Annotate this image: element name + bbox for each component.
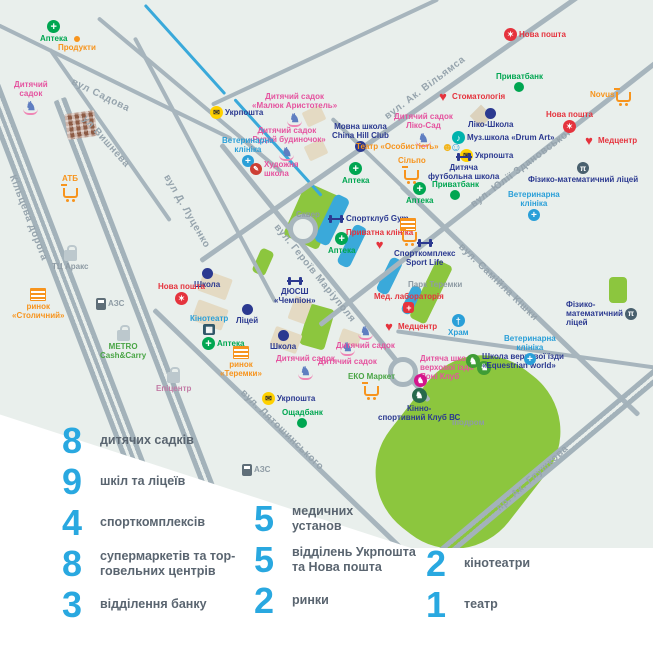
legend-count: 4 [56,505,88,541]
legend-item: 5відділень Укрпошта та Нова пошта [248,539,416,580]
legend-label: кінотеатри [464,556,530,571]
legend-count: 3 [56,587,88,623]
legend-item: 8дитячих садків [56,420,235,461]
legend-count: 8 [56,423,88,459]
legend-count: 1 [420,587,452,623]
legend-label: дитячих садків [100,433,194,448]
legend-item: 2ринки [248,580,416,621]
legend-column: 8дитячих садків9шкіл та ліцеїв4спорткомп… [56,420,235,625]
legend-item: 4спорткомплексів [56,502,235,543]
legend-column: 2кінотеатри1театр [420,543,530,625]
legend-label: супермаркетів та тор- говельних центрів [100,549,235,579]
legend-item: 3відділення банку [56,584,235,625]
legend-label: медичних установ [292,504,353,534]
legend-count: 2 [420,546,452,582]
legend-item: 2кінотеатри [420,543,530,584]
legend-count: 5 [248,501,280,537]
legend-count: 2 [248,583,280,619]
legend-item: 5медичних установ [248,498,416,539]
legend-label: шкіл та ліцеїв [100,474,185,489]
legend-label: ринки [292,593,329,608]
legend-item: 8супермаркетів та тор- говельних центрів [56,543,235,584]
legend-count: 9 [56,464,88,500]
legend-label: театр [464,597,498,612]
legend-label: спорткомплексів [100,515,205,530]
legend-item: 1театр [420,584,530,625]
legend-count: 5 [248,542,280,578]
legend-item: 9шкіл та ліцеїв [56,461,235,502]
legend-label: відділення банку [100,597,207,612]
legend-count: 8 [56,546,88,582]
legend: 8дитячих садків9шкіл та ліцеїв4спорткомп… [0,0,653,670]
neighborhood-infographic: вул Садоваул ВишневаКільцева дорогавул Д… [0,0,653,670]
legend-column: 5медичних установ5відділень Укрпошта та … [248,498,416,621]
legend-label: відділень Укрпошта та Нова пошта [292,545,416,575]
